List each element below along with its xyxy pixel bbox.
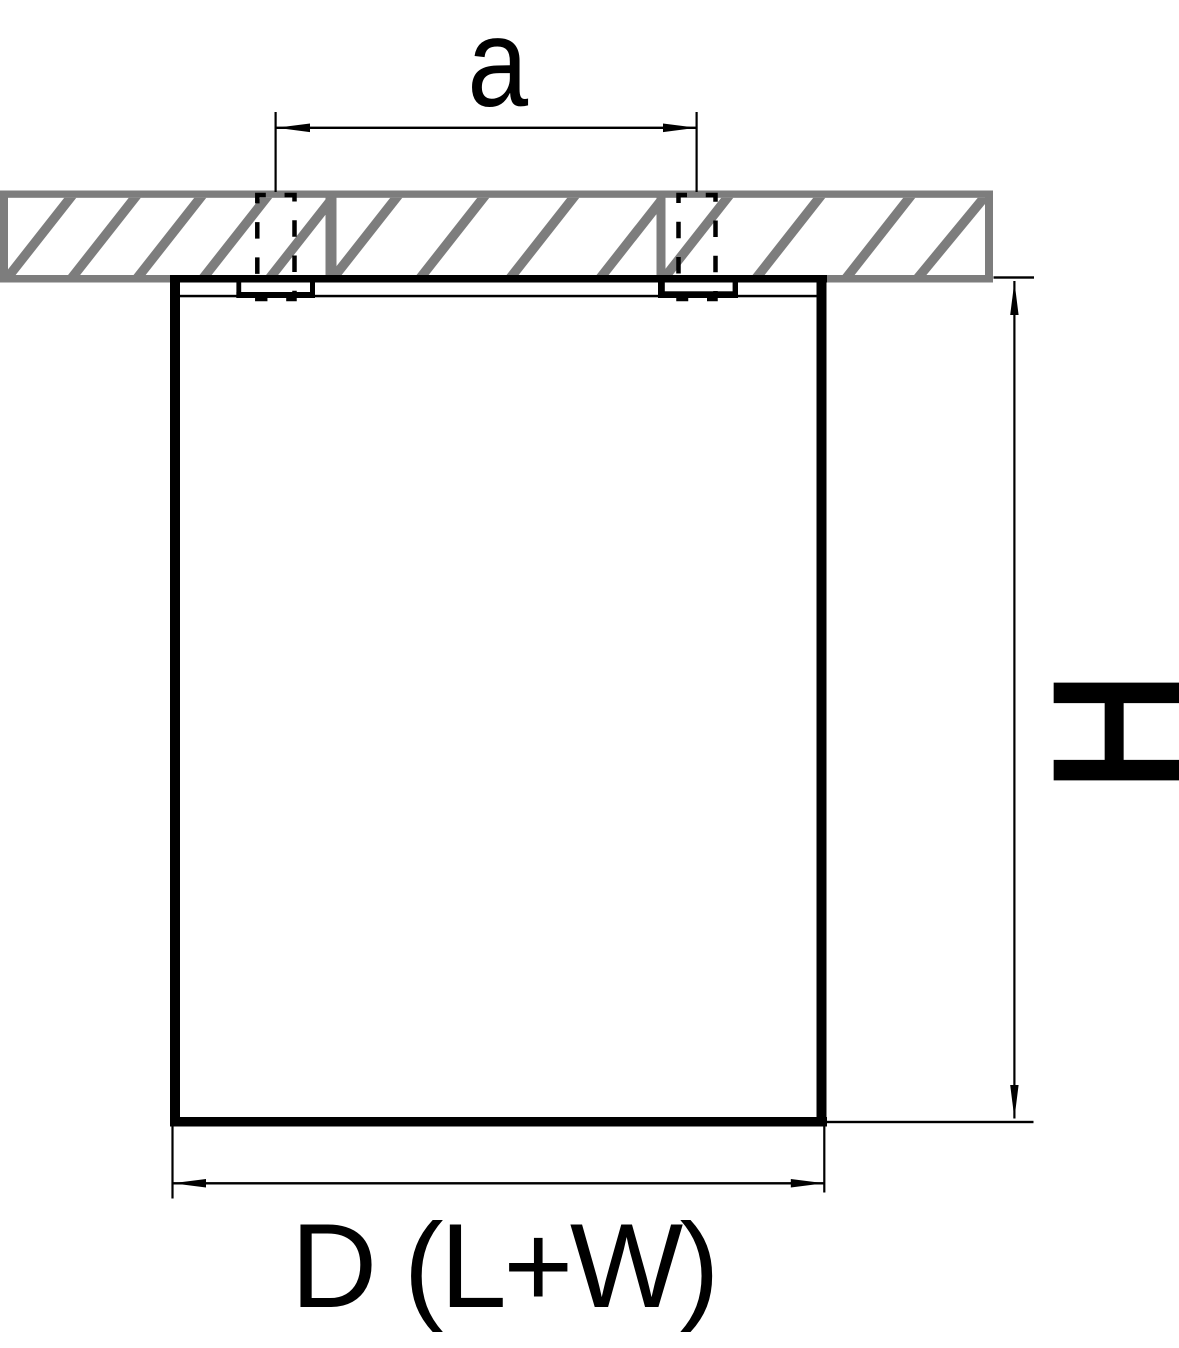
svg-text:a: a [467,0,528,133]
svg-text:D (L+W): D (L+W) [291,1199,716,1333]
svg-text:H: H [1019,672,1179,792]
